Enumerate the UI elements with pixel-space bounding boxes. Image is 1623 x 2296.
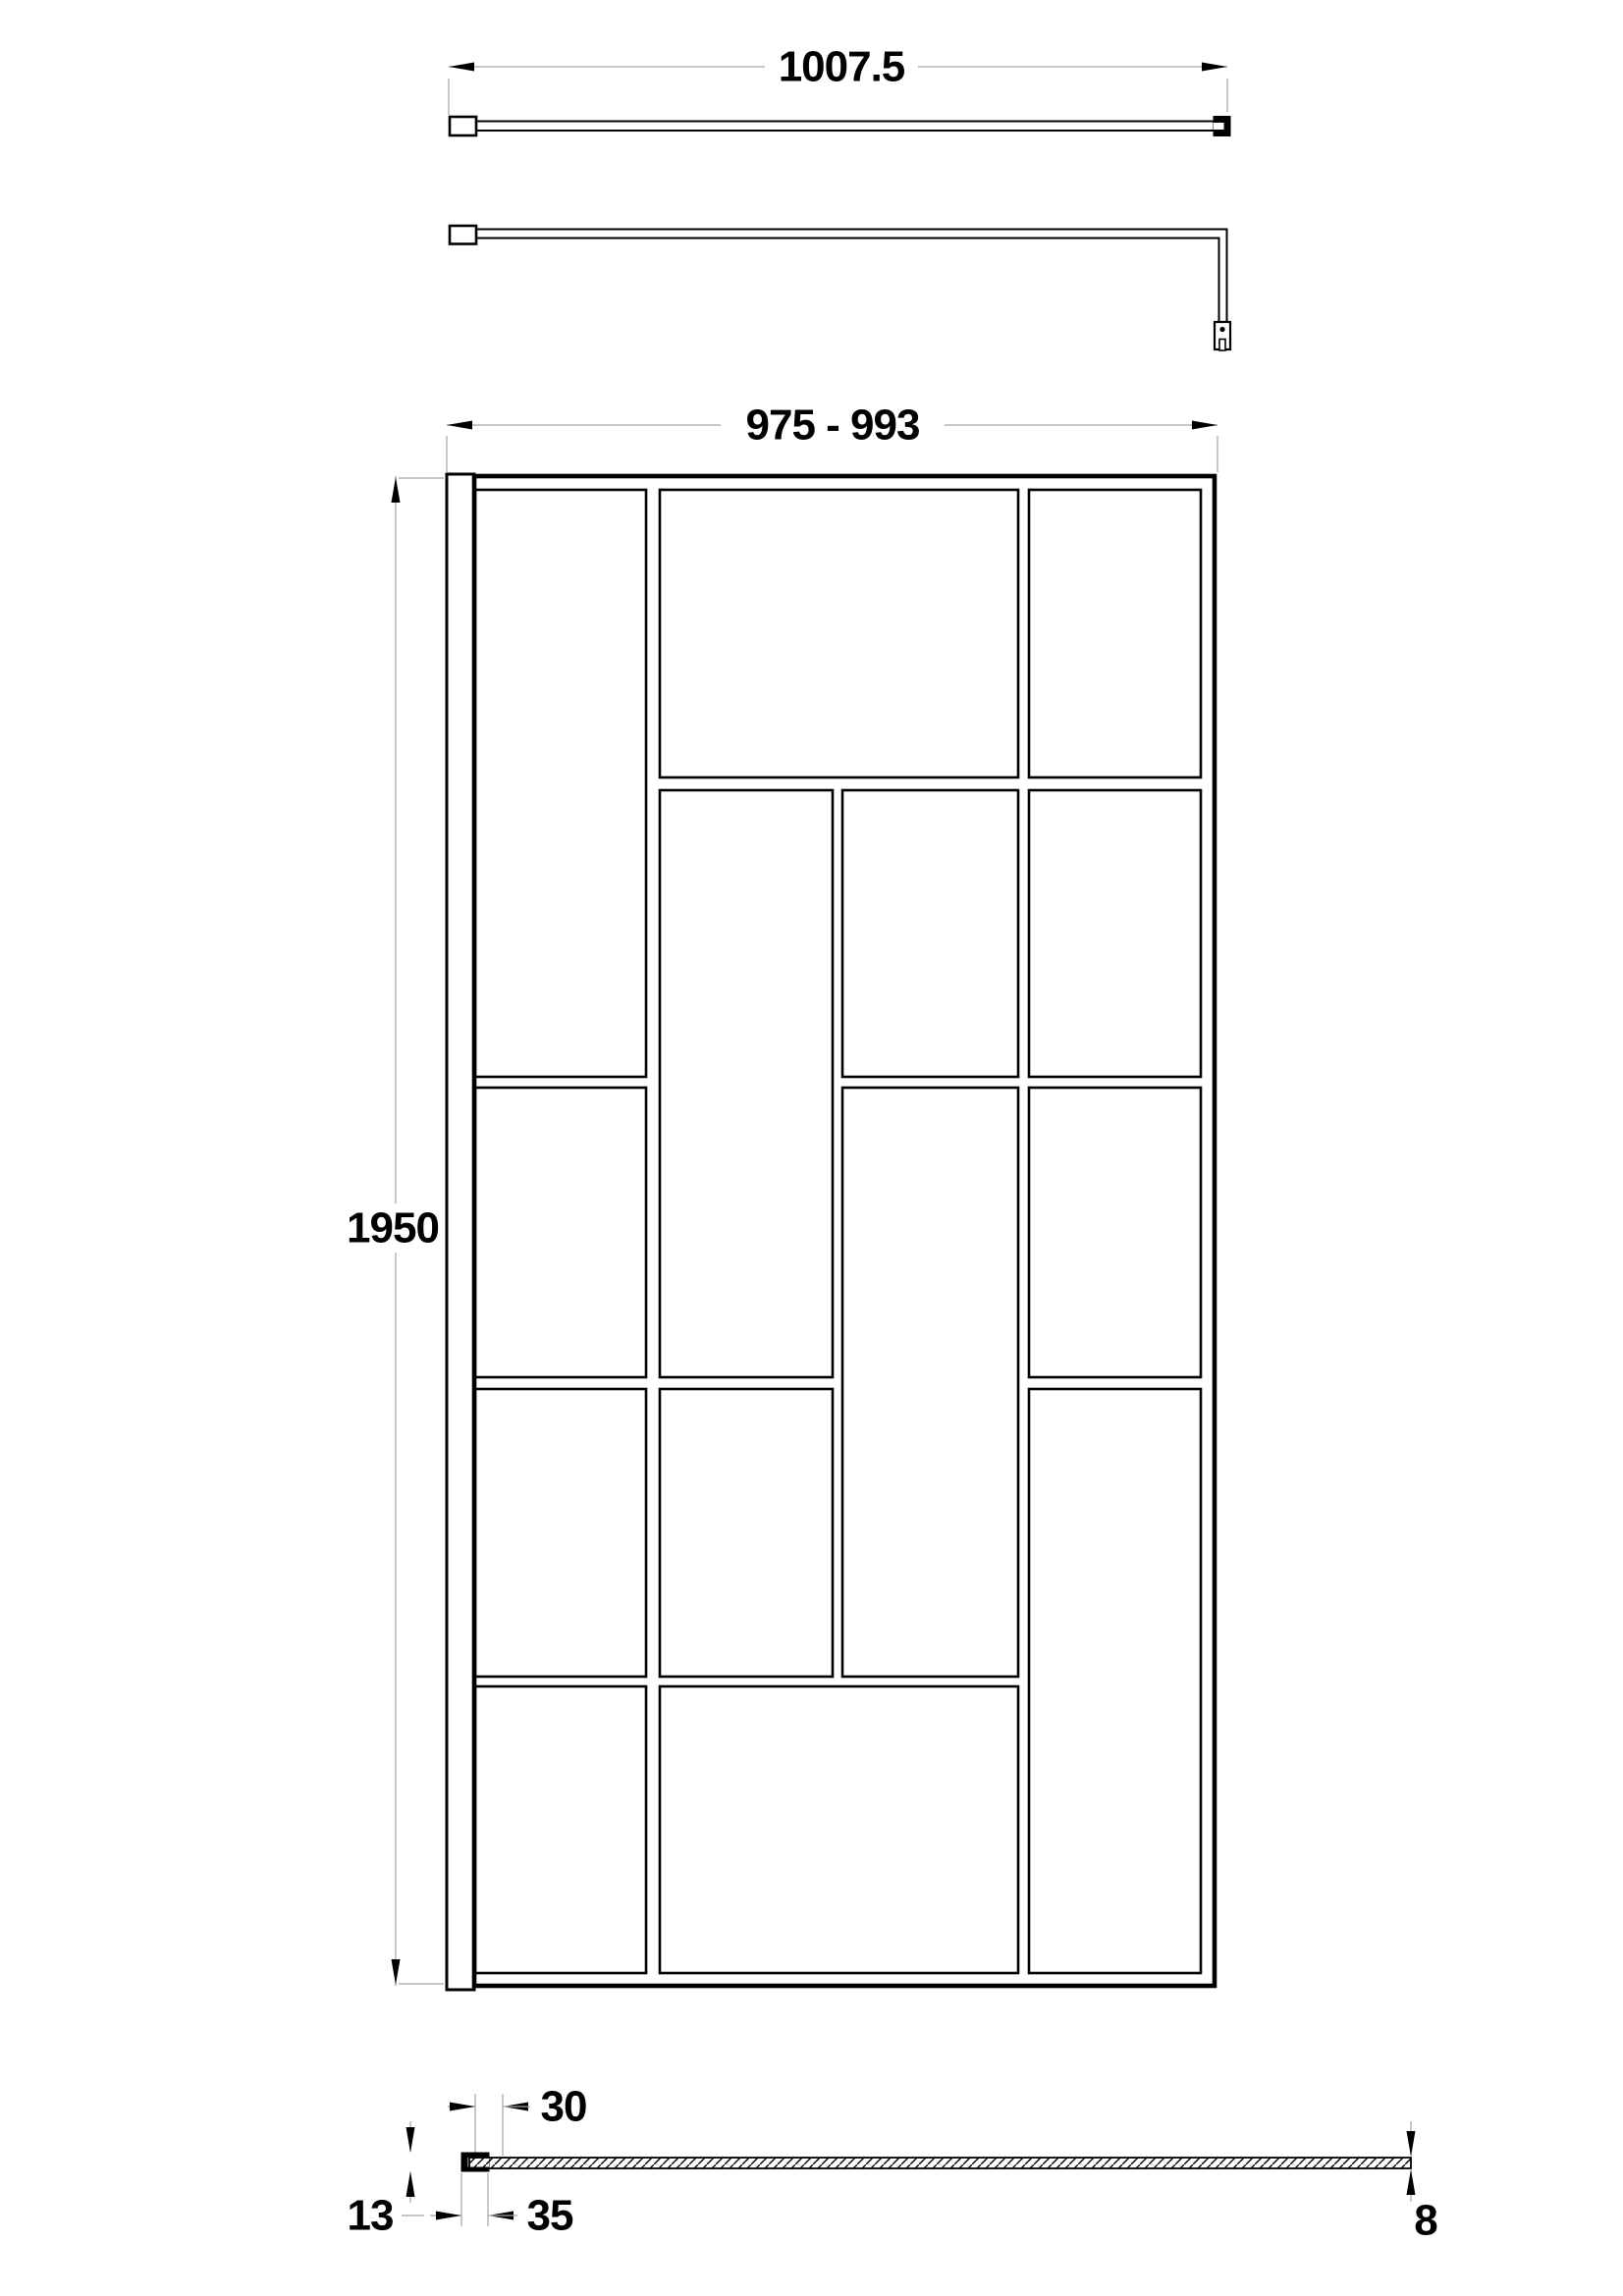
arrowhead-up [406,2171,415,2197]
technical-drawing-canvas: 1007.5975 - 99319503013358 [0,0,1623,2296]
arrowhead-right [1192,421,1217,430]
dim-label-wall-offset: 13 [348,2192,394,2240]
wall-bracket-plan [450,226,476,244]
arrowhead-up [1407,2169,1416,2195]
arrowhead-right [1202,63,1227,72]
glass-pane [1029,1088,1201,1377]
clamp-screw [1219,327,1224,332]
arrowhead-down [1407,2131,1416,2157]
arrowhead-down [392,1959,401,1985]
arrowhead-left [449,63,474,72]
dim-label-profile-width: 35 [527,2192,573,2240]
glass-pane [1029,790,1201,1077]
glass-pane [842,790,1018,1077]
wall-bracket-plan [450,117,476,135]
shower-screen-technical-drawing: 1007.5975 - 99319503013358 [0,0,1623,2296]
glass-clamp-notch [1214,123,1224,130]
glass-pane [660,790,833,1377]
clamp-fork-notch [1219,340,1225,351]
glass-pane [842,1088,1018,1677]
arrowhead-right [450,2103,475,2111]
arrowhead-right [436,2212,461,2220]
dim-label-arm-length: 1007.5 [779,43,905,91]
wall-profile [447,474,474,1990]
glass-pane [1029,1389,1201,1973]
screen-frame [474,476,1215,1986]
dim-label-width: 975 - 993 [746,401,920,450]
arrowhead-up [392,477,401,503]
glass-panel-section [469,2158,1411,2168]
glass-pane [660,1389,833,1677]
glass-pane [660,490,1018,777]
glass-pane [1029,490,1201,777]
arrowhead-down [406,2127,415,2153]
arrowhead-left [447,421,472,430]
dim-label-glass-thickness: 8 [1414,2197,1437,2245]
dim-label-bracket-depth: 30 [541,2083,587,2131]
glass-pane [475,1389,646,1677]
glass-pane [475,1686,646,1973]
glass-pane [660,1686,1018,1973]
glass-pane [475,490,646,1077]
glass-pane [475,1088,646,1377]
dim-label-height: 1950 [347,1204,439,1253]
